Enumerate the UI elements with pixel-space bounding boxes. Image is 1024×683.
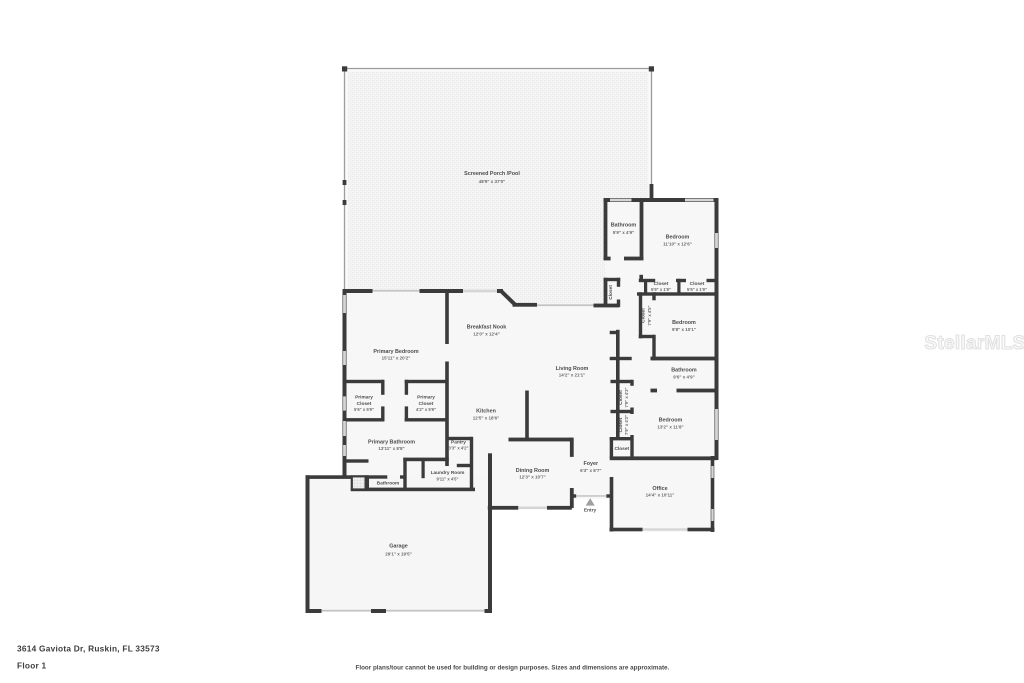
svg-text:29'1" x 19'5": 29'1" x 19'5" <box>385 551 411 556</box>
svg-text:7'9" x 4'5": 7'9" x 4'5" <box>647 306 652 326</box>
svg-text:Living Room: Living Room <box>556 366 589 372</box>
svg-text:Closet: Closet <box>419 401 434 407</box>
svg-text:7'9" x 4'3": 7'9" x 4'3" <box>624 415 629 435</box>
svg-text:3614 Gaviota Dr, Ruskin, FL 33: 3614 Gaviota Dr, Ruskin, FL 33573 <box>17 644 160 654</box>
svg-text:Entry: Entry <box>584 508 597 514</box>
svg-text:12'3" x 10'7": 12'3" x 10'7" <box>519 474 545 479</box>
svg-text:11'10" x 12'6": 11'10" x 12'6" <box>663 242 692 247</box>
svg-text:Primary: Primary <box>355 394 373 400</box>
svg-text:Bathroom: Bathroom <box>611 223 637 229</box>
svg-text:StellarMLS: StellarMLS <box>924 333 1024 354</box>
svg-text:Laundry Room: Laundry Room <box>431 470 465 476</box>
svg-text:9'6" x 4'9": 9'6" x 4'9" <box>673 375 694 380</box>
svg-text:14'4" x 10'11": 14'4" x 10'11" <box>646 493 675 498</box>
svg-text:5'6" x 5'9": 5'6" x 5'9" <box>354 407 374 412</box>
svg-text:Kitchen: Kitchen <box>476 409 496 415</box>
svg-text:5'9" x 1'9": 5'9" x 1'9" <box>651 287 671 292</box>
svg-text:Bedroom: Bedroom <box>672 320 696 326</box>
svg-text:15'11" x 20'2": 15'11" x 20'2" <box>382 355 411 360</box>
svg-text:7'9" x 4'3": 7'9" x 4'3" <box>624 388 629 408</box>
svg-text:Screened Porch /Pool: Screened Porch /Pool <box>464 171 520 177</box>
svg-text:Floor plans/tour cannot be use: Floor plans/tour cannot be used for buil… <box>355 665 669 672</box>
svg-text:14'2" x 21'1": 14'2" x 21'1" <box>559 373 585 378</box>
svg-text:Dining Room: Dining Room <box>516 468 550 474</box>
svg-text:48'9" x 37'0": 48'9" x 37'0" <box>479 179 505 184</box>
svg-text:Primary Bathroom: Primary Bathroom <box>368 440 415 446</box>
svg-text:Office: Office <box>652 486 667 492</box>
svg-text:5'5" x 1'9": 5'5" x 1'9" <box>687 287 707 292</box>
svg-text:Floor 1: Floor 1 <box>17 661 47 671</box>
svg-text:3'3" x 4'2": 3'3" x 4'2" <box>449 446 469 451</box>
svg-text:12'0" x 12'4": 12'0" x 12'4" <box>473 331 499 336</box>
svg-text:5'9" x 4'9": 5'9" x 4'9" <box>613 230 634 235</box>
svg-text:4'2" x 5'9": 4'2" x 5'9" <box>416 407 436 412</box>
svg-text:6'3" x 8'7": 6'3" x 8'7" <box>580 468 601 473</box>
svg-text:13'2" x 11'8": 13'2" x 11'8" <box>657 425 683 430</box>
svg-text:Closet: Closet <box>357 401 372 407</box>
svg-text:12'5" x 18'6": 12'5" x 18'6" <box>473 415 499 420</box>
svg-text:Closet: Closet <box>614 446 629 452</box>
svg-text:9'11" x 4'5": 9'11" x 4'5" <box>436 476 458 481</box>
svg-text:Foyer: Foyer <box>583 461 599 467</box>
svg-text:Closet: Closet <box>641 308 647 323</box>
svg-text:Primary: Primary <box>417 394 435 400</box>
svg-text:Bedroom: Bedroom <box>666 234 690 240</box>
svg-text:Garage: Garage <box>389 544 408 550</box>
svg-text:Breakfast Nook: Breakfast Nook <box>467 324 507 330</box>
svg-text:Primary Bedroom: Primary Bedroom <box>373 349 418 355</box>
svg-text:Closet: Closet <box>608 285 614 300</box>
svg-text:Bathroom: Bathroom <box>671 367 697 373</box>
svg-text:Bedroom: Bedroom <box>659 418 683 424</box>
svg-text:13'11" x 8'8": 13'11" x 8'8" <box>378 446 404 451</box>
svg-text:Bathroom: Bathroom <box>377 481 400 487</box>
svg-text:9'8" x 10'1": 9'8" x 10'1" <box>672 327 696 332</box>
